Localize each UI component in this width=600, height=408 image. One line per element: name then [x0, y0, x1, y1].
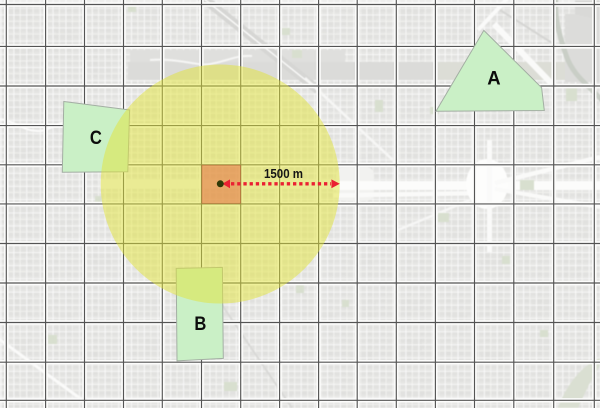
- svg-text:B: B: [194, 313, 206, 335]
- svg-text:A: A: [487, 68, 501, 90]
- svg-text:1500 m: 1500 m: [264, 167, 303, 182]
- svg-text:C: C: [90, 127, 102, 149]
